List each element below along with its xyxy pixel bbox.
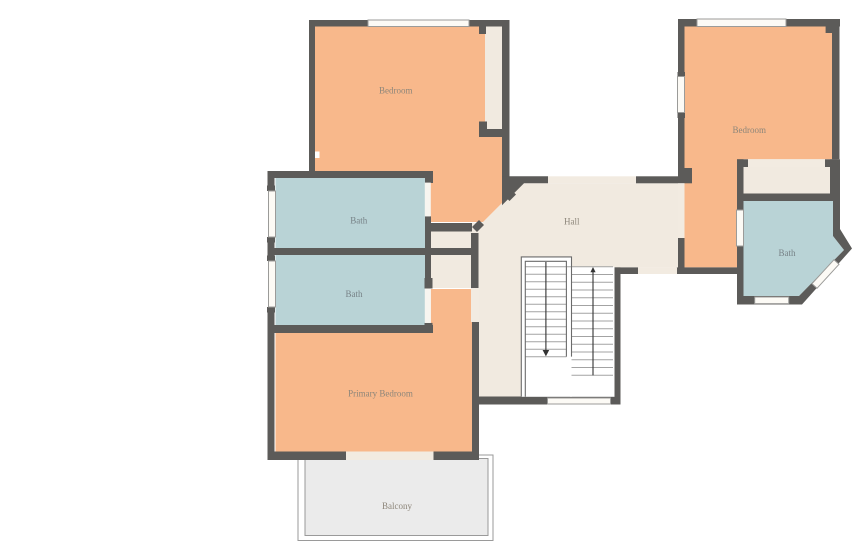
svg-text:Balcony: Balcony <box>382 501 412 511</box>
svg-text:Hall: Hall <box>564 217 580 227</box>
svg-text:Bedroom: Bedroom <box>733 125 767 135</box>
svg-text:Bath: Bath <box>346 289 363 299</box>
svg-text:Bedroom: Bedroom <box>379 86 413 96</box>
svg-text:Bath: Bath <box>350 216 367 226</box>
svg-text:Bath: Bath <box>779 248 796 258</box>
svg-text:Primary Bedroom: Primary Bedroom <box>348 389 413 399</box>
